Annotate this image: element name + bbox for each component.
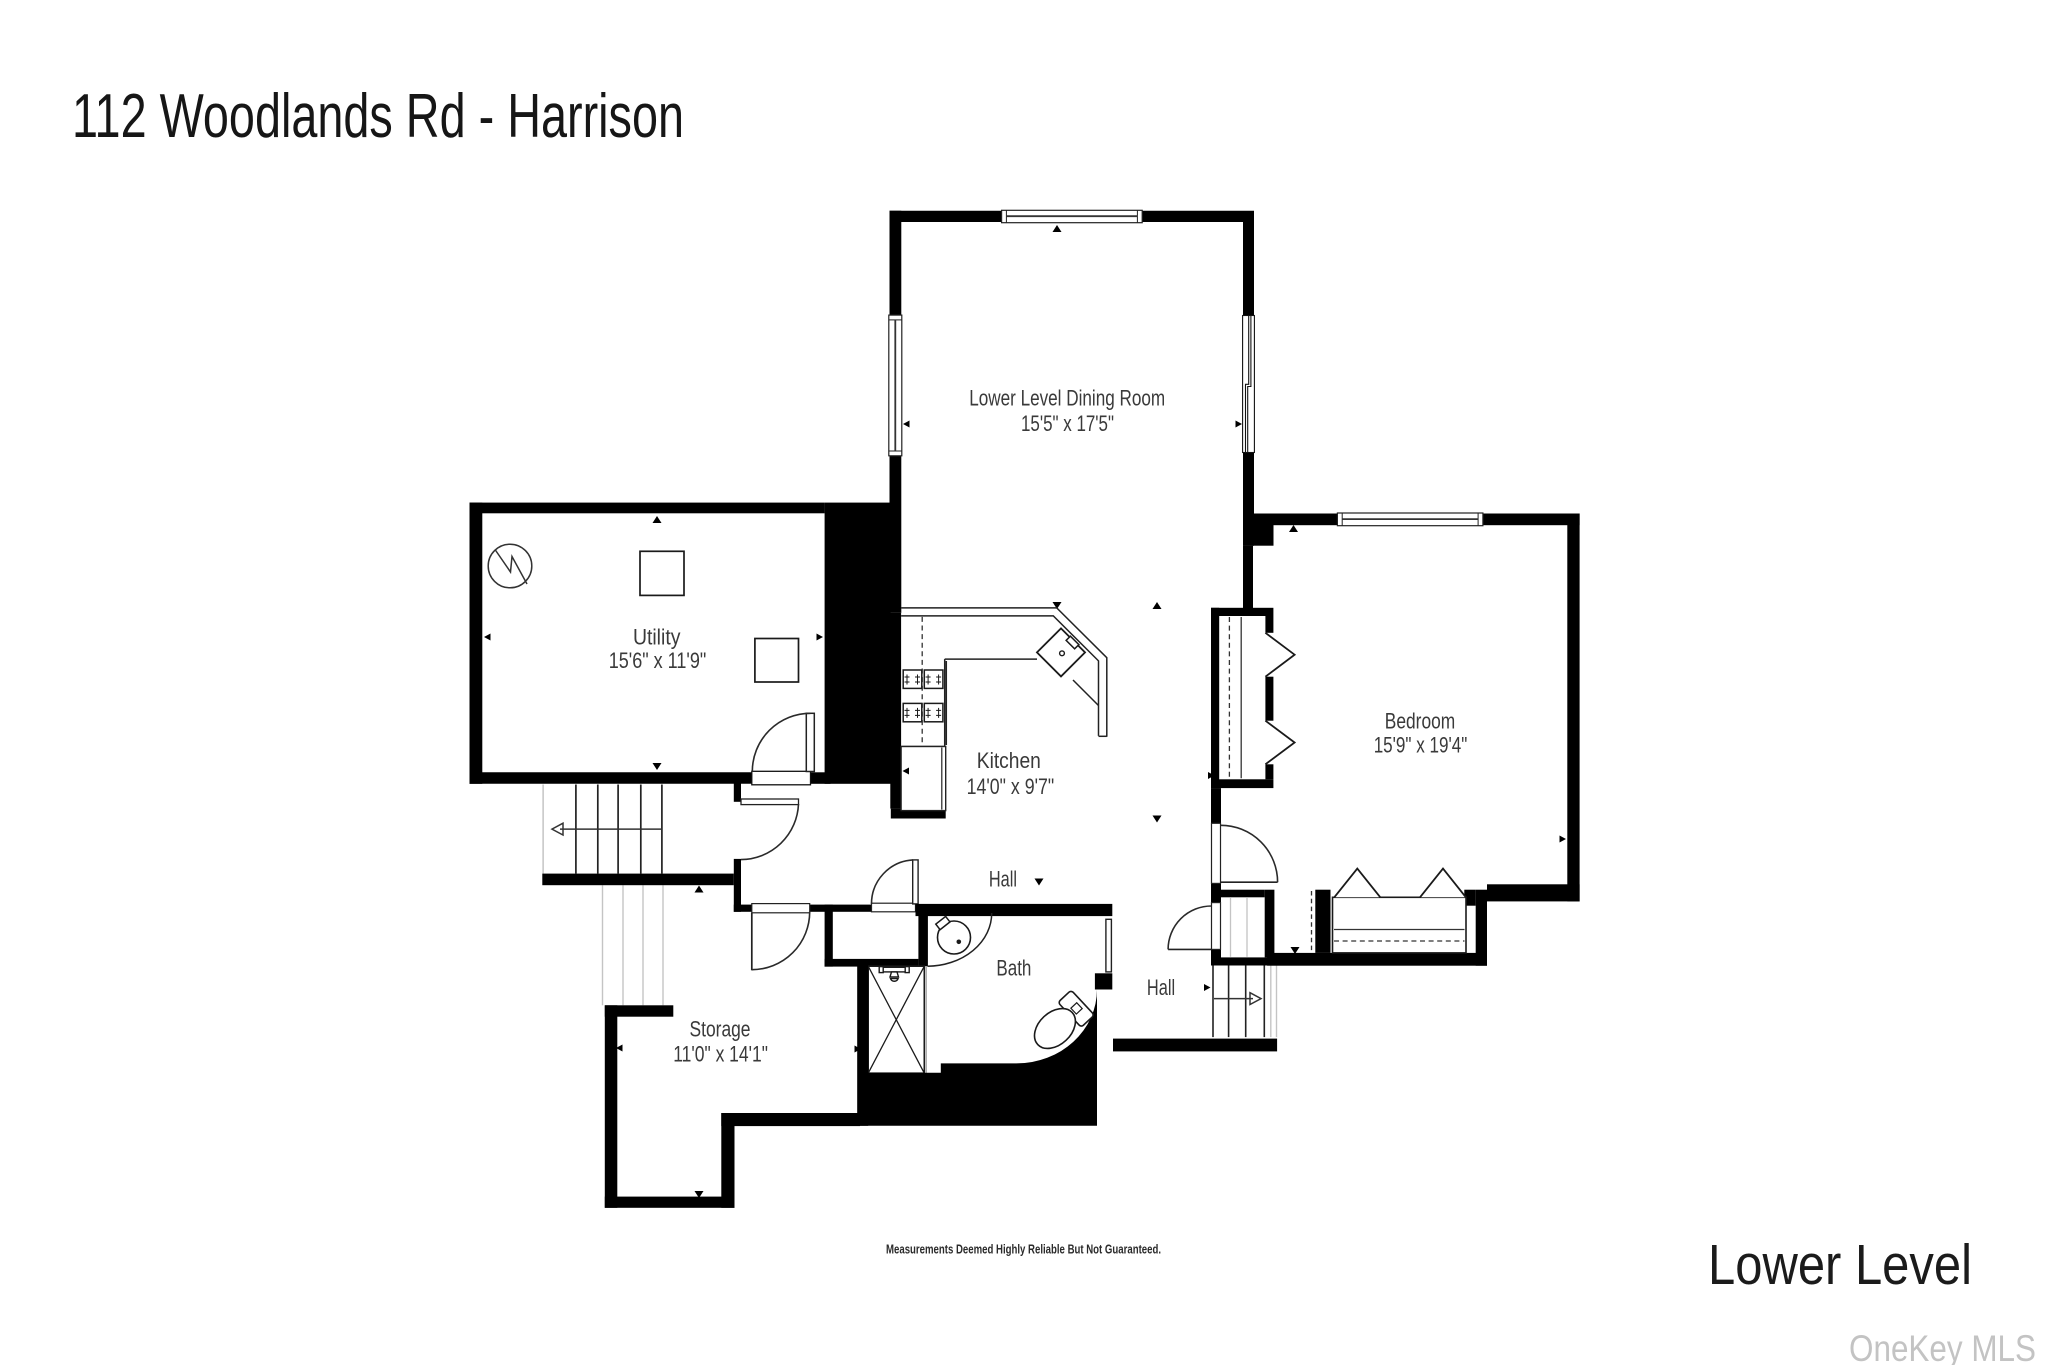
- svg-text:Utility: Utility: [633, 624, 681, 649]
- svg-text:15'5" x 17'5": 15'5" x 17'5": [1021, 411, 1114, 436]
- svg-text:112 Woodlands Rd - Harrison: 112 Woodlands Rd - Harrison: [72, 82, 684, 151]
- svg-text:11'0" x 14'1": 11'0" x 14'1": [673, 1042, 768, 1067]
- svg-text:Hall: Hall: [989, 867, 1017, 892]
- svg-text:15'9" x 19'4": 15'9" x 19'4": [1374, 733, 1468, 758]
- svg-text:Hall: Hall: [1147, 975, 1175, 1000]
- svg-text:Measurements Deemed Highly Rel: Measurements Deemed Highly Reliable But …: [886, 1242, 1161, 1257]
- svg-text:OneKey MLS: OneKey MLS: [1849, 1328, 2036, 1365]
- svg-text:Bedroom: Bedroom: [1385, 709, 1455, 734]
- svg-text:14'0" x 9'7": 14'0" x 9'7": [967, 774, 1055, 799]
- svg-text:Lower Level: Lower Level: [1708, 1233, 1972, 1297]
- svg-text:Bath: Bath: [996, 956, 1031, 981]
- svg-text:Kitchen: Kitchen: [977, 748, 1041, 773]
- svg-text:Storage: Storage: [690, 1017, 751, 1042]
- svg-text:15'6" x 11'9": 15'6" x 11'9": [609, 648, 707, 673]
- svg-text:Lower Level Dining Room: Lower Level Dining Room: [969, 386, 1165, 411]
